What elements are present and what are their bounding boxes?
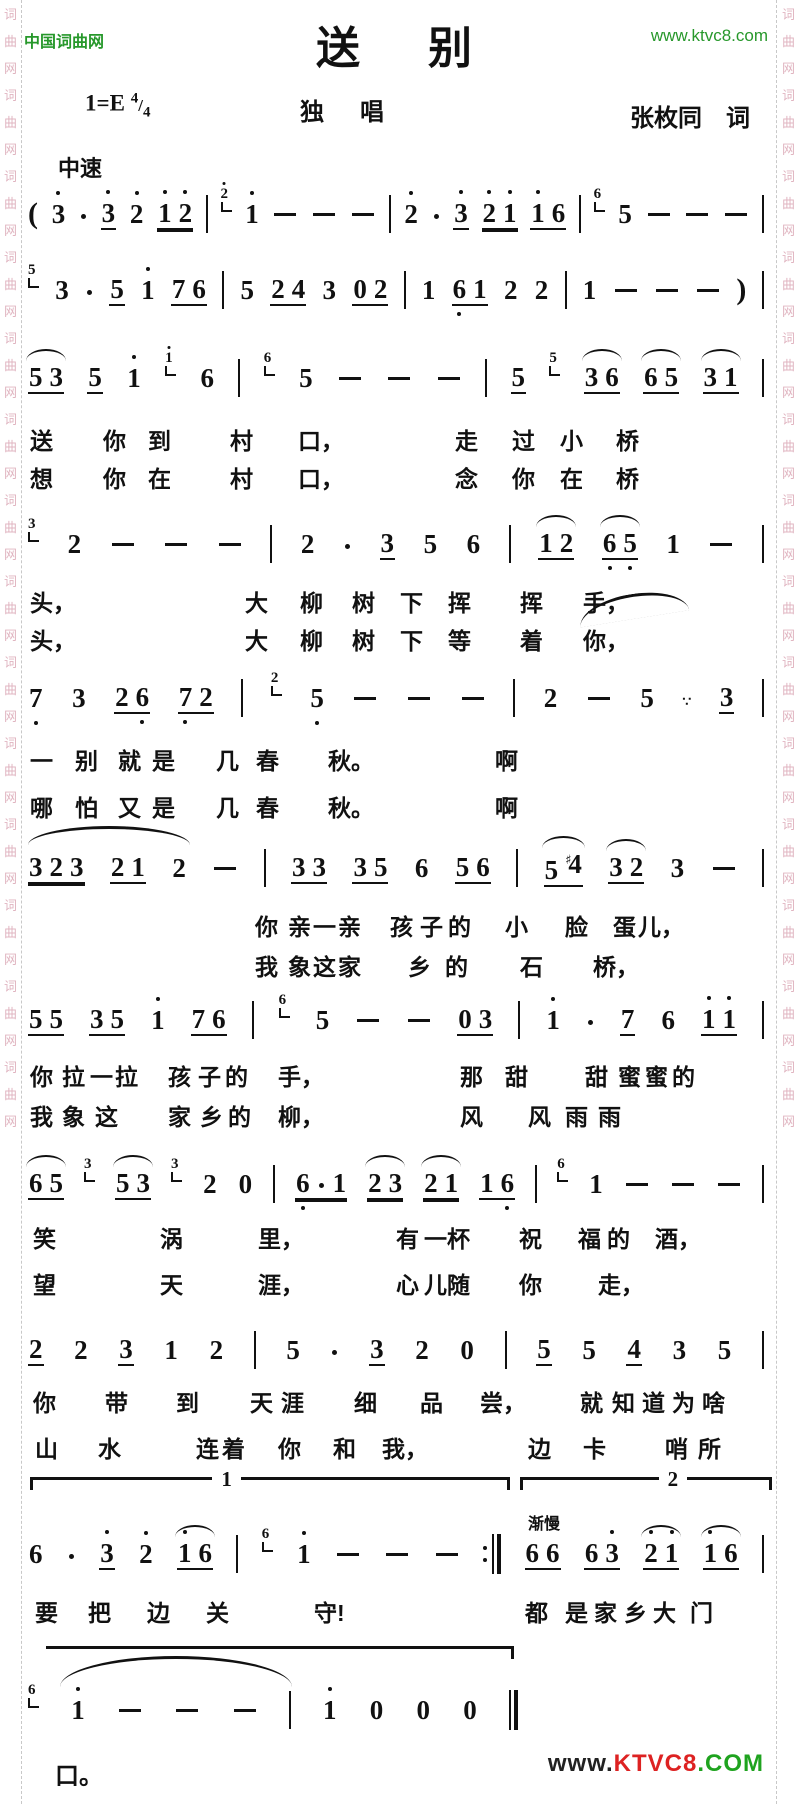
lyric-syllable: 亲 — [288, 908, 311, 942]
performance-type: 独 唱 — [300, 92, 390, 127]
lyric-syllable: 你 — [33, 1384, 56, 1418]
octave-dot-above — [183, 190, 187, 194]
note-digit: 6 — [296, 1168, 310, 1198]
lyric-syllable: 桥 — [616, 422, 639, 456]
note-digit: 6 — [136, 682, 150, 712]
lyric-syllable: 你 — [255, 908, 278, 942]
octave-dot-below — [505, 1206, 509, 1210]
note-group: 1 — [322, 1695, 338, 1725]
barline-icon — [485, 359, 487, 397]
lyric-syllable: 的 — [448, 908, 471, 942]
lyric-syllable: 乡 — [200, 1098, 223, 1132]
octave-dot-above — [223, 182, 226, 185]
dash-note — [686, 213, 708, 216]
lyric-syllable: 家 — [594, 1594, 617, 1628]
note-group: 3 — [670, 853, 686, 883]
note-group: 63 — [584, 1538, 620, 1570]
watermark-char: 曲 — [782, 116, 795, 130]
octave-dot-above — [250, 191, 254, 195]
dash-note — [119, 1709, 141, 1712]
lyric-syllable: 儿， — [638, 908, 684, 942]
augmentation-dot — [332, 1350, 337, 1355]
note-group: 1 — [545, 1005, 561, 1035]
note-group: 2 — [138, 1539, 154, 1569]
augmentation-dot — [345, 544, 350, 549]
logo-text-part: www. — [548, 1750, 614, 1777]
barline-icon — [762, 195, 764, 233]
grace-note: 6 — [594, 188, 605, 212]
note-group: 7 — [620, 1004, 636, 1036]
note-digit: 5 — [545, 855, 559, 885]
lyric-syllable: 村 — [230, 460, 253, 494]
octave-dot-below — [315, 721, 319, 725]
barline-icon — [516, 849, 518, 887]
note-digit: 1 — [702, 1004, 716, 1034]
lyric-syllable: 子 — [420, 908, 443, 942]
lyric-syllable: 小 — [560, 422, 583, 456]
octave-dot-above — [302, 1531, 306, 1535]
notation-line: 611000 — [28, 1688, 518, 1732]
note-digit: 5 — [28, 264, 36, 277]
note-group: 76 — [171, 274, 207, 306]
augmentation-dot — [434, 214, 439, 219]
note-group: 323 — [28, 852, 85, 884]
octave-dot-above — [649, 1530, 653, 1534]
lyric-syllable: 头， — [30, 622, 76, 656]
note-digit: 1 — [131, 852, 145, 882]
lyric-syllable: 走 — [455, 422, 478, 456]
dash-note — [339, 377, 361, 380]
watermark-char: 网 — [782, 548, 795, 562]
lyric-syllable: 福 — [578, 1220, 601, 1254]
barline-icon — [762, 1535, 764, 1573]
note-digit: 6 — [594, 188, 602, 201]
note-group: 3 — [453, 198, 469, 230]
note-digit: 5 — [116, 1168, 130, 1198]
lyric-row: 你亲一亲孩子的小脸蛋儿， — [0, 908, 800, 938]
watermark-char: 曲 — [4, 683, 17, 697]
note-digit: 2 — [368, 1168, 382, 1198]
note-digit: 5 — [29, 362, 43, 392]
note-digit: 0 — [239, 1169, 253, 1199]
note-digit: 6 — [29, 1539, 43, 1569]
note-digit: 4 — [627, 1334, 641, 1364]
note-digit: 2 — [172, 853, 186, 883]
note-group: 1 — [582, 275, 598, 305]
note-group: 1 — [163, 1335, 179, 1365]
grace-note: 6 — [264, 352, 275, 376]
watermark-char: 词 — [782, 89, 795, 103]
note-group: 03 — [457, 1004, 493, 1036]
volta-tick — [769, 1477, 772, 1490]
lyric-syllable: 道 — [642, 1384, 665, 1418]
octave-dot-below — [140, 720, 144, 724]
note-group: 2 — [209, 1335, 225, 1365]
watermark-char: 曲 — [4, 521, 17, 535]
note-group: 2 — [534, 275, 550, 305]
lyric-syllable: 象 — [62, 1098, 85, 1132]
lyric-syllable: 涯， — [258, 1266, 304, 1300]
note-group: 1 — [244, 199, 260, 229]
note-digit: 5 — [582, 1335, 596, 1365]
dash-note — [337, 1553, 359, 1556]
note-digit: 3 — [479, 1004, 493, 1034]
note-digit: 5 — [316, 1005, 330, 1035]
note-digit: 3 — [370, 1334, 384, 1364]
octave-dot-below — [301, 1206, 305, 1210]
notation-line: 32235612651 — [28, 522, 764, 566]
lyric-syllable: 蛋 — [613, 908, 636, 942]
lyric-syllable: 知 — [612, 1384, 635, 1418]
note-group: 16 — [703, 1538, 739, 1570]
note-group: 5♯4 — [544, 849, 583, 887]
lyric-syllable: 是 — [152, 742, 175, 776]
note-group: 0 — [462, 1695, 478, 1725]
octave-dot-above — [183, 1530, 187, 1534]
note-digit: 7 — [179, 682, 193, 712]
watermark-char: 词 — [4, 170, 17, 184]
watermark-char: 词 — [782, 251, 795, 265]
lyric-syllable: 祝 — [519, 1220, 542, 1254]
watermark-char: 网 — [4, 548, 17, 562]
lyric-syllable: 的 — [445, 948, 468, 982]
watermark-char: 网 — [782, 710, 795, 724]
note-digit: 2 — [210, 1335, 224, 1365]
octave-dot-above — [144, 1531, 148, 1535]
lyric-syllable: 你 — [278, 1430, 301, 1464]
dash-note — [352, 213, 374, 216]
note-digit: 6 — [199, 1538, 213, 1568]
note-group: 5 — [423, 529, 439, 559]
lyric-syllable: 望 — [33, 1266, 56, 1300]
note-digit: 6 — [28, 1684, 36, 1697]
barline-icon — [762, 1001, 764, 1039]
dash-note — [436, 1553, 458, 1556]
barline-icon — [762, 1331, 764, 1369]
lyric-syllable: 我， — [382, 1430, 428, 1464]
note-digit: 5 — [50, 1004, 64, 1034]
lyric-syllable: 怕 — [75, 789, 98, 823]
note-digit: 2 — [630, 852, 644, 882]
note-group: 1 — [588, 1169, 604, 1199]
barline-icon — [535, 1165, 537, 1203]
note-digit: 7 — [192, 1004, 206, 1034]
lyric-syllable: 山 — [35, 1430, 58, 1464]
lyric-syllable: 一 — [90, 1058, 113, 1092]
note-digit: 5 — [456, 852, 470, 882]
note-digit: 5 — [286, 1335, 300, 1365]
note-group: 6 — [200, 363, 216, 393]
lyric-syllable: 都 — [525, 1594, 548, 1628]
lyric-syllable: 啥 — [702, 1384, 725, 1418]
watermark-char: 词 — [782, 980, 795, 994]
notation-line: 22312532055435 — [28, 1328, 764, 1372]
note-digit: 5 — [240, 275, 254, 305]
note-digit: 3 — [100, 1538, 114, 1568]
note-digit: 4 — [292, 274, 306, 304]
note-group: 1 — [150, 1005, 166, 1035]
note-digit: 6 — [501, 1168, 515, 1198]
volta-bracket-continuation — [46, 1646, 514, 1661]
lyric-syllable: 手， — [583, 584, 629, 618]
note-digit: 6 — [585, 1538, 599, 1568]
note-group: 1 — [665, 529, 681, 559]
note-group: 53 — [28, 362, 64, 394]
note-group: 2 — [503, 275, 519, 305]
grace-hook-icon — [279, 1008, 290, 1018]
lyric-syllable: 要 — [35, 1594, 58, 1628]
note-group: 2 — [543, 683, 559, 713]
octave-dot-below — [34, 721, 38, 725]
note-digit: 0 — [458, 1004, 472, 1034]
lyric-syllable: 的 — [672, 1058, 695, 1092]
dash-note — [354, 697, 376, 700]
barline-icon — [505, 1331, 507, 1369]
footer-logo[interactable]: www.KTVC8.COM — [548, 1750, 764, 1778]
lyric-syllable: 下 — [400, 584, 423, 618]
lyric-syllable: 家 — [168, 1098, 191, 1132]
lyric-syllable: 天 — [250, 1384, 273, 1418]
lyric-syllable: 想 — [30, 460, 53, 494]
lyric-syllable: 口， — [298, 422, 344, 456]
repeat-barline-icon — [483, 1534, 501, 1574]
lyric-syllable: 你 — [519, 1266, 542, 1300]
barline-icon — [509, 525, 511, 563]
lyric-syllable: 把 — [88, 1594, 111, 1628]
note-digit: 6 — [476, 852, 490, 882]
octave-dot-above — [163, 190, 167, 194]
lyric-syllable: 杯 — [447, 1220, 470, 1254]
lyric-syllable: 下 — [400, 622, 423, 656]
note-digit: 2 — [404, 199, 418, 229]
note-group: 61 — [295, 1168, 347, 1200]
note-group: 76 — [191, 1004, 227, 1036]
note-digit: 6 — [415, 853, 429, 883]
lyric-syllable: 乡 — [408, 948, 431, 982]
watermark-char: 网 — [782, 872, 795, 886]
note-digit: 5 — [299, 363, 313, 393]
lyric-syllable: 那 — [460, 1058, 483, 1092]
note-group: 65 — [643, 362, 679, 394]
lyric-syllable: 着 — [222, 1430, 245, 1464]
lyric-syllable: 在 — [148, 460, 171, 494]
augmentation-dot — [319, 1183, 324, 1188]
octave-dot-above — [146, 267, 150, 271]
notation-line: 535176524302161221) — [28, 268, 764, 312]
note-group: 0 — [238, 1169, 254, 1199]
note-digit: 3 — [292, 852, 306, 882]
watermark-char: 网 — [4, 386, 17, 400]
note-group: 35 — [89, 1004, 125, 1036]
watermark-char: 网 — [4, 872, 17, 886]
watermark-char: 曲 — [782, 278, 795, 292]
parenthesis: ) — [736, 275, 746, 305]
lyric-syllable: 我 — [255, 948, 278, 982]
lyric-syllable: 涯 — [281, 1384, 304, 1418]
grace-note: 3 — [84, 1158, 95, 1182]
lyric-syllable: 水 — [98, 1430, 121, 1464]
note-group: 3 — [672, 1335, 688, 1365]
watermark-char: 曲 — [782, 197, 795, 211]
note-digit: 5 — [618, 199, 632, 229]
augmentation-dot — [87, 290, 92, 295]
lyric-syllable: 笑 — [33, 1220, 56, 1254]
note-digit: ♯4 — [565, 849, 582, 885]
ornament-mark: ∵ — [682, 694, 691, 711]
lyric-row: 头，大柳树下挥挥手， — [0, 584, 800, 614]
sharp-icon: ♯ — [565, 853, 571, 868]
watermark-char: 网 — [782, 305, 795, 319]
dash-note — [648, 213, 670, 216]
dash-note — [672, 1183, 694, 1186]
notation-line: 5351166555366531 — [28, 356, 764, 400]
note-digit: 2 — [115, 682, 129, 712]
watermark-char: 词 — [4, 980, 17, 994]
logo-text-part: KTVC8 — [614, 1750, 698, 1777]
key-signature: 1=E — [85, 91, 125, 116]
note-digit: 3 — [29, 852, 43, 882]
dash-note — [725, 213, 747, 216]
dash-note — [386, 1553, 408, 1556]
note-digit: 3 — [28, 518, 36, 531]
lyric-syllable: 村 — [230, 422, 253, 456]
grace-hook-icon — [264, 366, 275, 376]
note-digit: 1 — [127, 363, 141, 393]
lyric-syllable: 念 — [455, 460, 478, 494]
grace-note: 2 — [221, 188, 232, 212]
note-digit: 1 — [158, 198, 172, 228]
grace-note: 6 — [557, 1158, 568, 1182]
lyric-syllable: 一 — [313, 908, 336, 942]
watermark-char: 曲 — [782, 359, 795, 373]
octave-dot-above — [167, 346, 170, 349]
note-digit: 3 — [609, 852, 623, 882]
notation-line: 5535176650317611 — [28, 998, 764, 1042]
lyric-syllable: 随 — [447, 1266, 470, 1300]
watermark-char: 词 — [4, 89, 17, 103]
dash-note — [656, 289, 678, 292]
lyric-syllable: 风 — [528, 1098, 551, 1132]
watermark-char: 词 — [782, 170, 795, 184]
note-digit: 2 — [415, 1335, 429, 1365]
octave-dot-above — [670, 1530, 674, 1534]
octave-dot-above — [459, 190, 463, 194]
lyric-syllable: 的 — [228, 1098, 251, 1132]
note-digit: 2 — [560, 528, 574, 558]
watermark-char: 词 — [782, 332, 795, 346]
note-digit: 7 — [29, 683, 43, 713]
note-group: 2 — [129, 199, 145, 229]
note-group: 53 — [115, 1168, 151, 1200]
note-digit: 6 — [526, 1538, 540, 1568]
lyric-syllable: 和 — [333, 1430, 356, 1464]
lyric-syllable: 你 — [103, 422, 126, 456]
note-digit: 6 — [644, 362, 658, 392]
watermark-char: 词 — [782, 494, 795, 508]
final-barline-icon — [509, 1690, 518, 1730]
note-group: 5 — [511, 362, 527, 394]
lyric-syllable: 里， — [258, 1220, 304, 1254]
notation-line: 7326722525∵3 — [28, 676, 764, 720]
lyric-syllable: 到 — [148, 422, 171, 456]
augmentation-dot — [588, 1020, 593, 1025]
note-digit: 3 — [605, 1538, 619, 1568]
notation-line: 653533206123211661 — [28, 1162, 764, 1206]
note-digit: 1 — [665, 1538, 679, 1568]
watermark-char: 词 — [782, 818, 795, 832]
dash-note — [713, 867, 735, 870]
lyric-syllable: 甜 — [585, 1058, 608, 1092]
barline-icon — [289, 1691, 291, 1729]
note-digit: 1 — [480, 1168, 494, 1198]
note-digit: 5 — [549, 352, 557, 365]
key-time-signature: 1=E 4/4 — [85, 90, 150, 121]
lyric-row: 我象这家乡的柳，风风雨雨 — [0, 1098, 800, 1128]
barline-icon — [762, 679, 764, 717]
lyric-syllable: 家 — [338, 948, 361, 982]
dash-note — [626, 1183, 648, 1186]
note-digit: 1 — [445, 1168, 459, 1198]
note-digit: 2 — [374, 274, 388, 304]
octave-dot-above — [536, 190, 540, 194]
note-group: 33 — [291, 852, 327, 884]
lyric-syllable: 一 — [424, 1220, 447, 1254]
note-group: 12 — [538, 528, 574, 560]
note-group: 2 — [202, 1169, 218, 1199]
note-digit: 3 — [52, 199, 66, 229]
lyric-syllable: 乡 — [624, 1594, 647, 1628]
note-digit: 2 — [483, 198, 497, 228]
octave-dot-above — [551, 997, 555, 1001]
note-group: 65 — [602, 528, 638, 560]
note-group: 0 — [459, 1335, 475, 1365]
watermark-char: 词 — [4, 818, 17, 832]
watermark-char: 曲 — [4, 116, 17, 130]
lyric-syllable: 甜 — [505, 1058, 528, 1092]
barline-icon — [252, 1001, 254, 1039]
lyric-syllable: 为 — [672, 1384, 695, 1418]
lyric-row: 想你在村口，念你在桥 — [0, 460, 800, 490]
barline-icon — [579, 195, 581, 233]
lyric-syllable: 哨 — [665, 1430, 688, 1464]
note-digit: 1 — [333, 1168, 347, 1198]
lyric-syllable: 边 — [528, 1430, 551, 1464]
note-group: 24 — [270, 274, 306, 306]
dash-note — [313, 213, 335, 216]
note-digit: 1 — [473, 274, 487, 304]
note-digit: 2 — [271, 672, 279, 685]
note-group: 21 — [643, 1538, 679, 1570]
lyricist-credit: 张枚同 词 — [630, 98, 750, 133]
note-group: 5 — [617, 199, 633, 229]
lyric-row: 送你到村口，走过小桥 — [0, 422, 800, 452]
lyric-syllable: 涡 — [160, 1220, 183, 1254]
lyric-syllable: 口， — [298, 460, 344, 494]
grace-hook-icon — [271, 686, 282, 696]
dash-note — [388, 377, 410, 380]
note-digit: 5 — [50, 1168, 64, 1198]
note-group: 6 — [660, 1005, 676, 1035]
note-digit: 3 — [70, 852, 84, 882]
barline-icon — [762, 1165, 764, 1203]
lyric-syllable: 就 — [118, 742, 141, 776]
lyric-syllable: 你 — [512, 460, 535, 494]
lyric-row: 头，大柳树下等着你， — [0, 622, 800, 652]
sheet-music-page: 词曲网词曲网词曲网词曲网词曲网词曲网词曲网词曲网词曲网词曲网词曲网词曲网词曲网词… — [0, 0, 800, 1804]
note-group: 3 — [118, 1334, 134, 1366]
octave-dot-below — [183, 720, 187, 724]
note-digit: 5 — [111, 1004, 125, 1034]
